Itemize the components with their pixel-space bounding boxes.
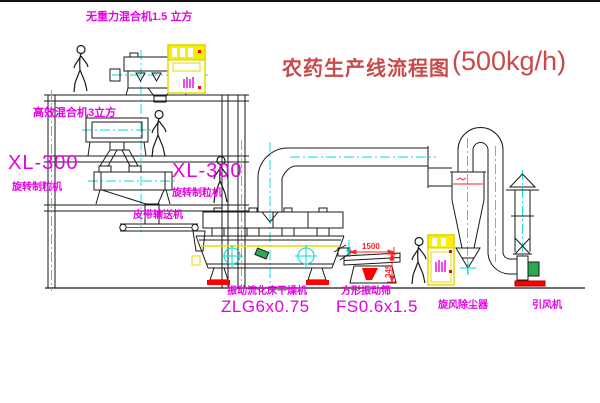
label-belt-conveyor: 皮带输送机	[133, 211, 183, 221]
title-chinese: 农药生产线流程图	[282, 46, 450, 81]
cad-flow-diagram-canvas: 无重力混合机1.5 立方 农药生产线流程图 (500kg/h) 高效混合机3立方…	[0, 0, 600, 403]
label-granulator-left-name: 旋转制粒机	[12, 183, 62, 193]
label-granulator-mid-model: XL-300	[172, 161, 243, 181]
dust-collector-cabinet-ground	[428, 235, 454, 285]
exhaust-duct	[258, 146, 452, 212]
label-dryer-model: ZLG6x0.75	[221, 298, 310, 315]
person-figure-ground	[412, 238, 426, 285]
top-border-line	[0, 0, 600, 2]
dimension-345: 345	[385, 265, 393, 278]
label-high-efficiency-mixer: 高效混合机3立方	[33, 108, 116, 119]
person-figure-floor2	[152, 111, 166, 158]
induced-draft-fan	[515, 256, 545, 286]
page-title: 农药生产线流程图 (500kg/h)	[282, 46, 566, 81]
title-capacity: (500kg/h)	[452, 46, 566, 77]
high-efficiency-mixer	[86, 118, 148, 166]
label-screen-name: 方形振动筛	[341, 287, 391, 297]
label-screen-model: FS0.6x1.5	[336, 298, 418, 315]
fluid-bed-dryer	[192, 208, 352, 285]
label-granulator-mid-name: 旋转制粒机	[172, 189, 222, 199]
label-fan: 引风机	[532, 301, 562, 311]
cyclone-separator	[450, 128, 517, 276]
label-dryer-name: 振动流化床干燥机	[227, 287, 307, 297]
label-granulator-left-model: XL-300	[8, 153, 79, 173]
label-cyclone: 旋风除尘器	[438, 301, 488, 311]
dimension-1500: 1500	[362, 243, 380, 251]
belt-conveyor	[120, 224, 205, 251]
person-figure-roof	[74, 46, 88, 93]
dust-collector-cabinet-top	[168, 45, 205, 93]
label-gravity-mixer: 无重力混合机1.5 立方	[86, 12, 192, 23]
